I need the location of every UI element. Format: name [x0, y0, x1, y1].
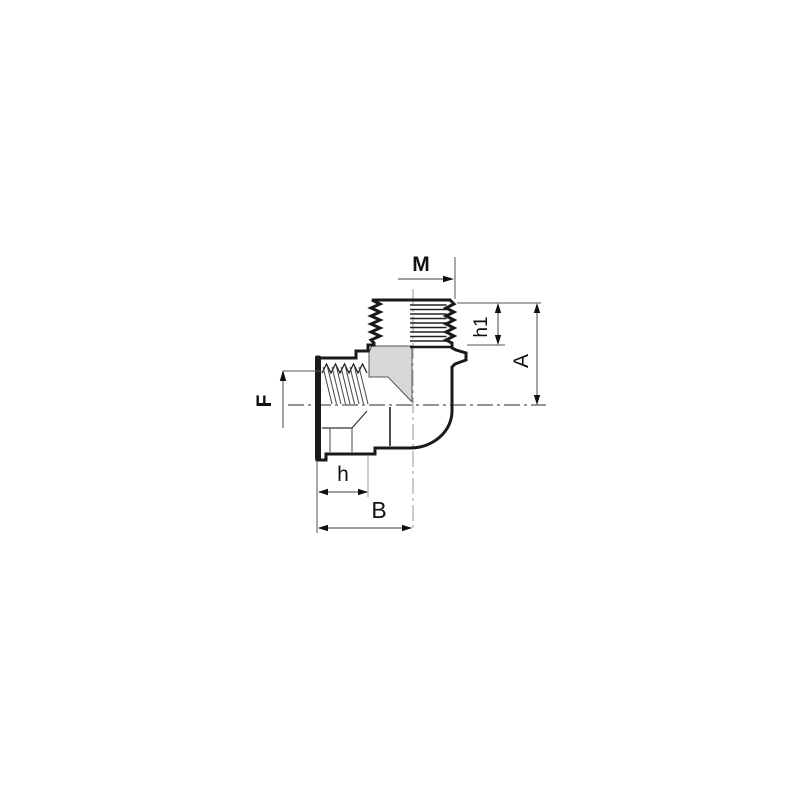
arrowhead-B-left: [318, 525, 328, 531]
arrowhead-h1-top: [495, 303, 501, 313]
dimension-B: B: [318, 497, 412, 531]
technical-drawing-page: M h1 A F: [0, 0, 800, 800]
label-F: F: [253, 394, 276, 407]
dimension-F: F: [253, 370, 320, 428]
arrowhead-A-top: [534, 303, 540, 313]
arrowhead-B-right: [402, 525, 412, 531]
arrowhead-h1-bottom: [495, 335, 501, 345]
fitting-drawing: [288, 289, 546, 532]
arrowhead-A-bottom: [534, 395, 540, 405]
dimension-h: h: [318, 456, 368, 497]
dimension-h1: h1: [467, 303, 505, 345]
label-h: h: [337, 463, 349, 486]
arrowhead-h-right: [358, 489, 368, 495]
arrowhead-F: [280, 370, 286, 381]
elbow-fitting-technical-drawing: M h1 A F: [0, 0, 800, 800]
label-h1: h1: [471, 316, 492, 337]
arrowhead-h-left: [318, 489, 328, 495]
dimension-M: M: [398, 253, 455, 299]
dimension-A: A: [510, 303, 540, 405]
arrowhead-M: [443, 276, 454, 282]
label-B: B: [371, 497, 386, 523]
label-A: A: [510, 354, 533, 368]
label-M: M: [412, 253, 430, 276]
